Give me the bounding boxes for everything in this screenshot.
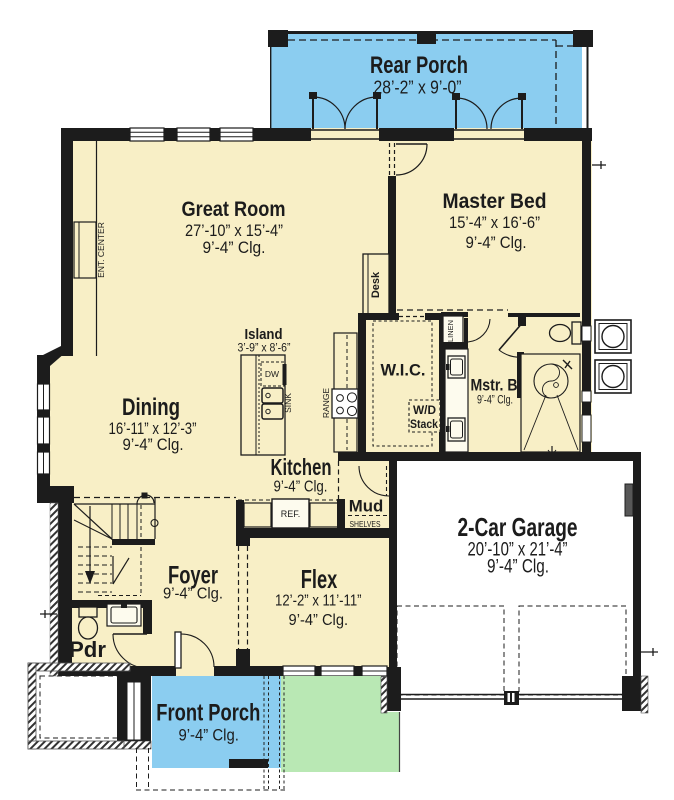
svg-text:9’-4” Clg.: 9’-4” Clg.: [123, 435, 184, 454]
svg-text:Mud: Mud: [349, 497, 384, 516]
svg-text:Rear Porch: Rear Porch: [370, 52, 468, 79]
svg-text:9’-4” Clg.: 9’-4” Clg.: [487, 557, 549, 578]
svg-text:Stack: Stack: [410, 419, 439, 431]
svg-text:Kitchen: Kitchen: [271, 454, 332, 480]
svg-text:28’-2” x 9’-0”: 28’-2” x 9’-0”: [374, 78, 462, 98]
svg-text:SHELVES: SHELVES: [350, 520, 381, 529]
svg-text:15’-4” x 16’-6”: 15’-4” x 16’-6”: [449, 214, 540, 232]
svg-text:DW: DW: [265, 369, 279, 379]
svg-text:9’-4” Clg.: 9’-4” Clg.: [289, 612, 349, 629]
svg-text:27’-10” x 15’-4”: 27’-10” x 15’-4”: [185, 222, 283, 240]
svg-text:9’-4” Clg.: 9’-4” Clg.: [477, 393, 513, 407]
svg-text:Pdr: Pdr: [69, 637, 106, 662]
svg-text:Master Bed: Master Bed: [443, 189, 547, 213]
svg-text:9’-4” Clg.: 9’-4” Clg.: [466, 234, 527, 252]
svg-text:9’-4” Clg.: 9’-4” Clg.: [163, 586, 223, 603]
svg-text:9’-4” Clg.: 9’-4” Clg.: [203, 239, 266, 257]
svg-text:Island: Island: [245, 326, 283, 343]
svg-text:RANGE: RANGE: [321, 388, 331, 419]
svg-text:3’-9” x 8’-6”: 3’-9” x 8’-6”: [238, 343, 291, 355]
svg-text:REF.: REF.: [281, 509, 301, 519]
svg-text:Dining: Dining: [122, 394, 180, 421]
svg-text:12’-2” x 11’-11”: 12’-2” x 11’-11”: [275, 593, 362, 610]
svg-text:9’-4” Clg.: 9’-4” Clg.: [274, 479, 328, 496]
svg-text:Flex: Flex: [301, 564, 338, 594]
svg-text:LINEN: LINEN: [446, 320, 455, 342]
svg-text:2-Car Garage: 2-Car Garage: [458, 512, 578, 542]
svg-text:Front Porch: Front Porch: [156, 700, 260, 727]
svg-text:Great Room: Great Room: [182, 197, 286, 221]
svg-text:SINK: SINK: [283, 393, 293, 413]
svg-text:Desk: Desk: [370, 271, 382, 298]
svg-text:W.I.C.: W.I.C.: [381, 361, 426, 380]
svg-text:9’-4” Clg.: 9’-4” Clg.: [178, 726, 239, 745]
svg-text:ENT. CENTER: ENT. CENTER: [96, 222, 106, 278]
svg-text:W/D: W/D: [413, 405, 436, 417]
